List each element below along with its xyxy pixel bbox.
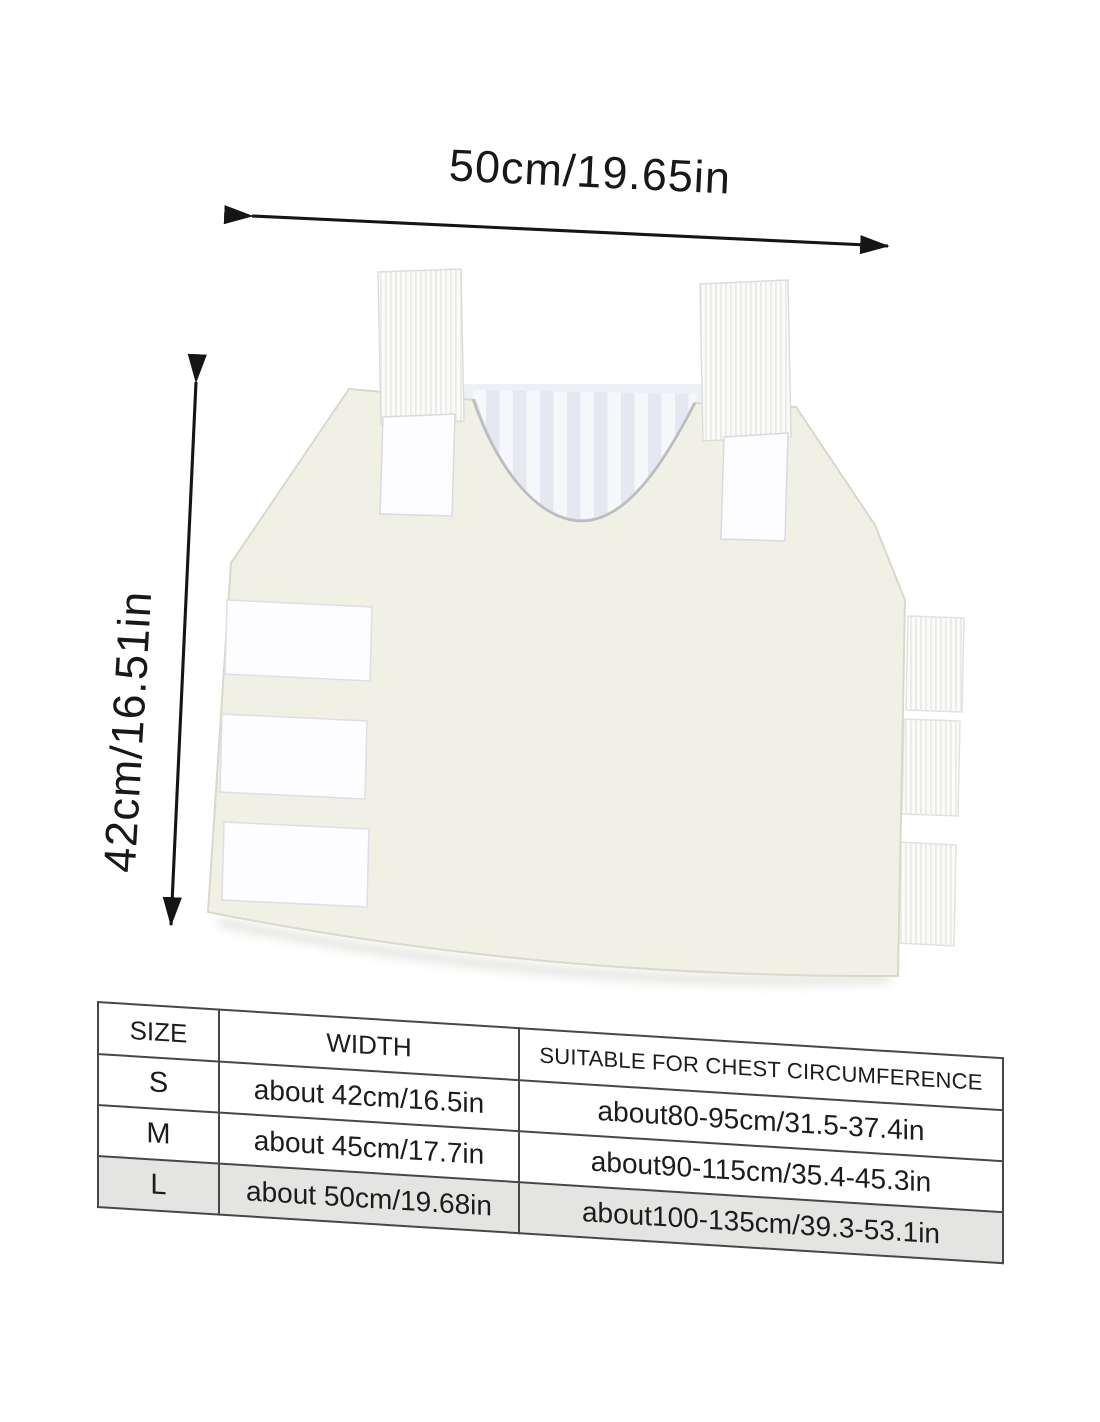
height-dimension-arrow [171,382,196,925]
width-dimension-arrow [252,216,888,246]
front-velcro-strip-middle [220,714,367,799]
size-cell-s: S [98,1054,219,1113]
front-velcro-strip-bottom [222,822,369,907]
size-cell-l: L [98,1156,219,1215]
side-straps [896,616,964,946]
product-dimension-diagram: 50cm/19.65in 42cm/16.51in SIZE WIDTH SUI… [0,0,1100,1422]
right-shoulder-strap [700,280,791,441]
right-strap-velcro [721,433,788,541]
left-shoulder-strap [378,269,464,425]
side-strap-bottom [896,842,956,946]
front-velcro-strip-top [225,600,372,681]
size-table-header-size: SIZE [98,1002,219,1062]
side-strap-middle [902,719,960,816]
front-velcro-strips [220,600,372,907]
left-strap-velcro [380,414,455,516]
size-cell-m: M [98,1105,219,1164]
side-strap-top [906,616,964,712]
